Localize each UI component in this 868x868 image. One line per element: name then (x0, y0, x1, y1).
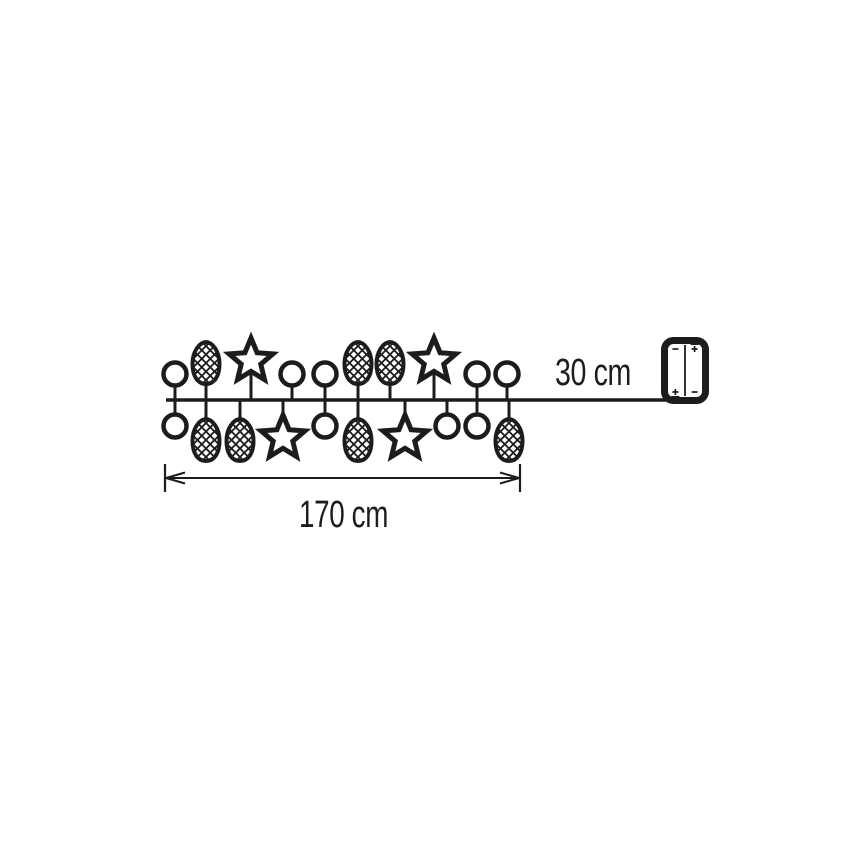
ball-ornament (466, 363, 489, 386)
lead-length-label: 30 cm (555, 352, 631, 394)
ball-ornament (164, 363, 187, 386)
pinecone-ornament (345, 342, 372, 384)
battery-terminal-nub (691, 341, 699, 345)
ball-ornament (314, 363, 337, 386)
star-ornament (412, 338, 456, 380)
ball-ornament (496, 363, 519, 386)
battery-terminal-nub (671, 396, 679, 400)
pinecone-ornament (193, 342, 220, 384)
pinecone-ornament (345, 419, 372, 461)
ball-ornament (281, 363, 304, 386)
star-ornament (383, 415, 427, 457)
star-ornament (261, 415, 305, 457)
pinecone-ornament (193, 419, 220, 461)
pinecone-ornament (227, 419, 254, 461)
ball-ornament (314, 415, 337, 438)
ball-ornament (436, 415, 459, 438)
diagram-canvas: 30 cm 170 cm (0, 0, 868, 868)
star-ornament (229, 338, 273, 380)
chain-length-label: 170 cm (299, 494, 388, 536)
pinecone-ornament (496, 419, 523, 461)
pinecone-ornament (377, 342, 404, 384)
ball-ornament (164, 415, 187, 438)
light-chain-diagram: 30 cm 170 cm (0, 0, 868, 868)
ball-ornament (466, 415, 489, 438)
